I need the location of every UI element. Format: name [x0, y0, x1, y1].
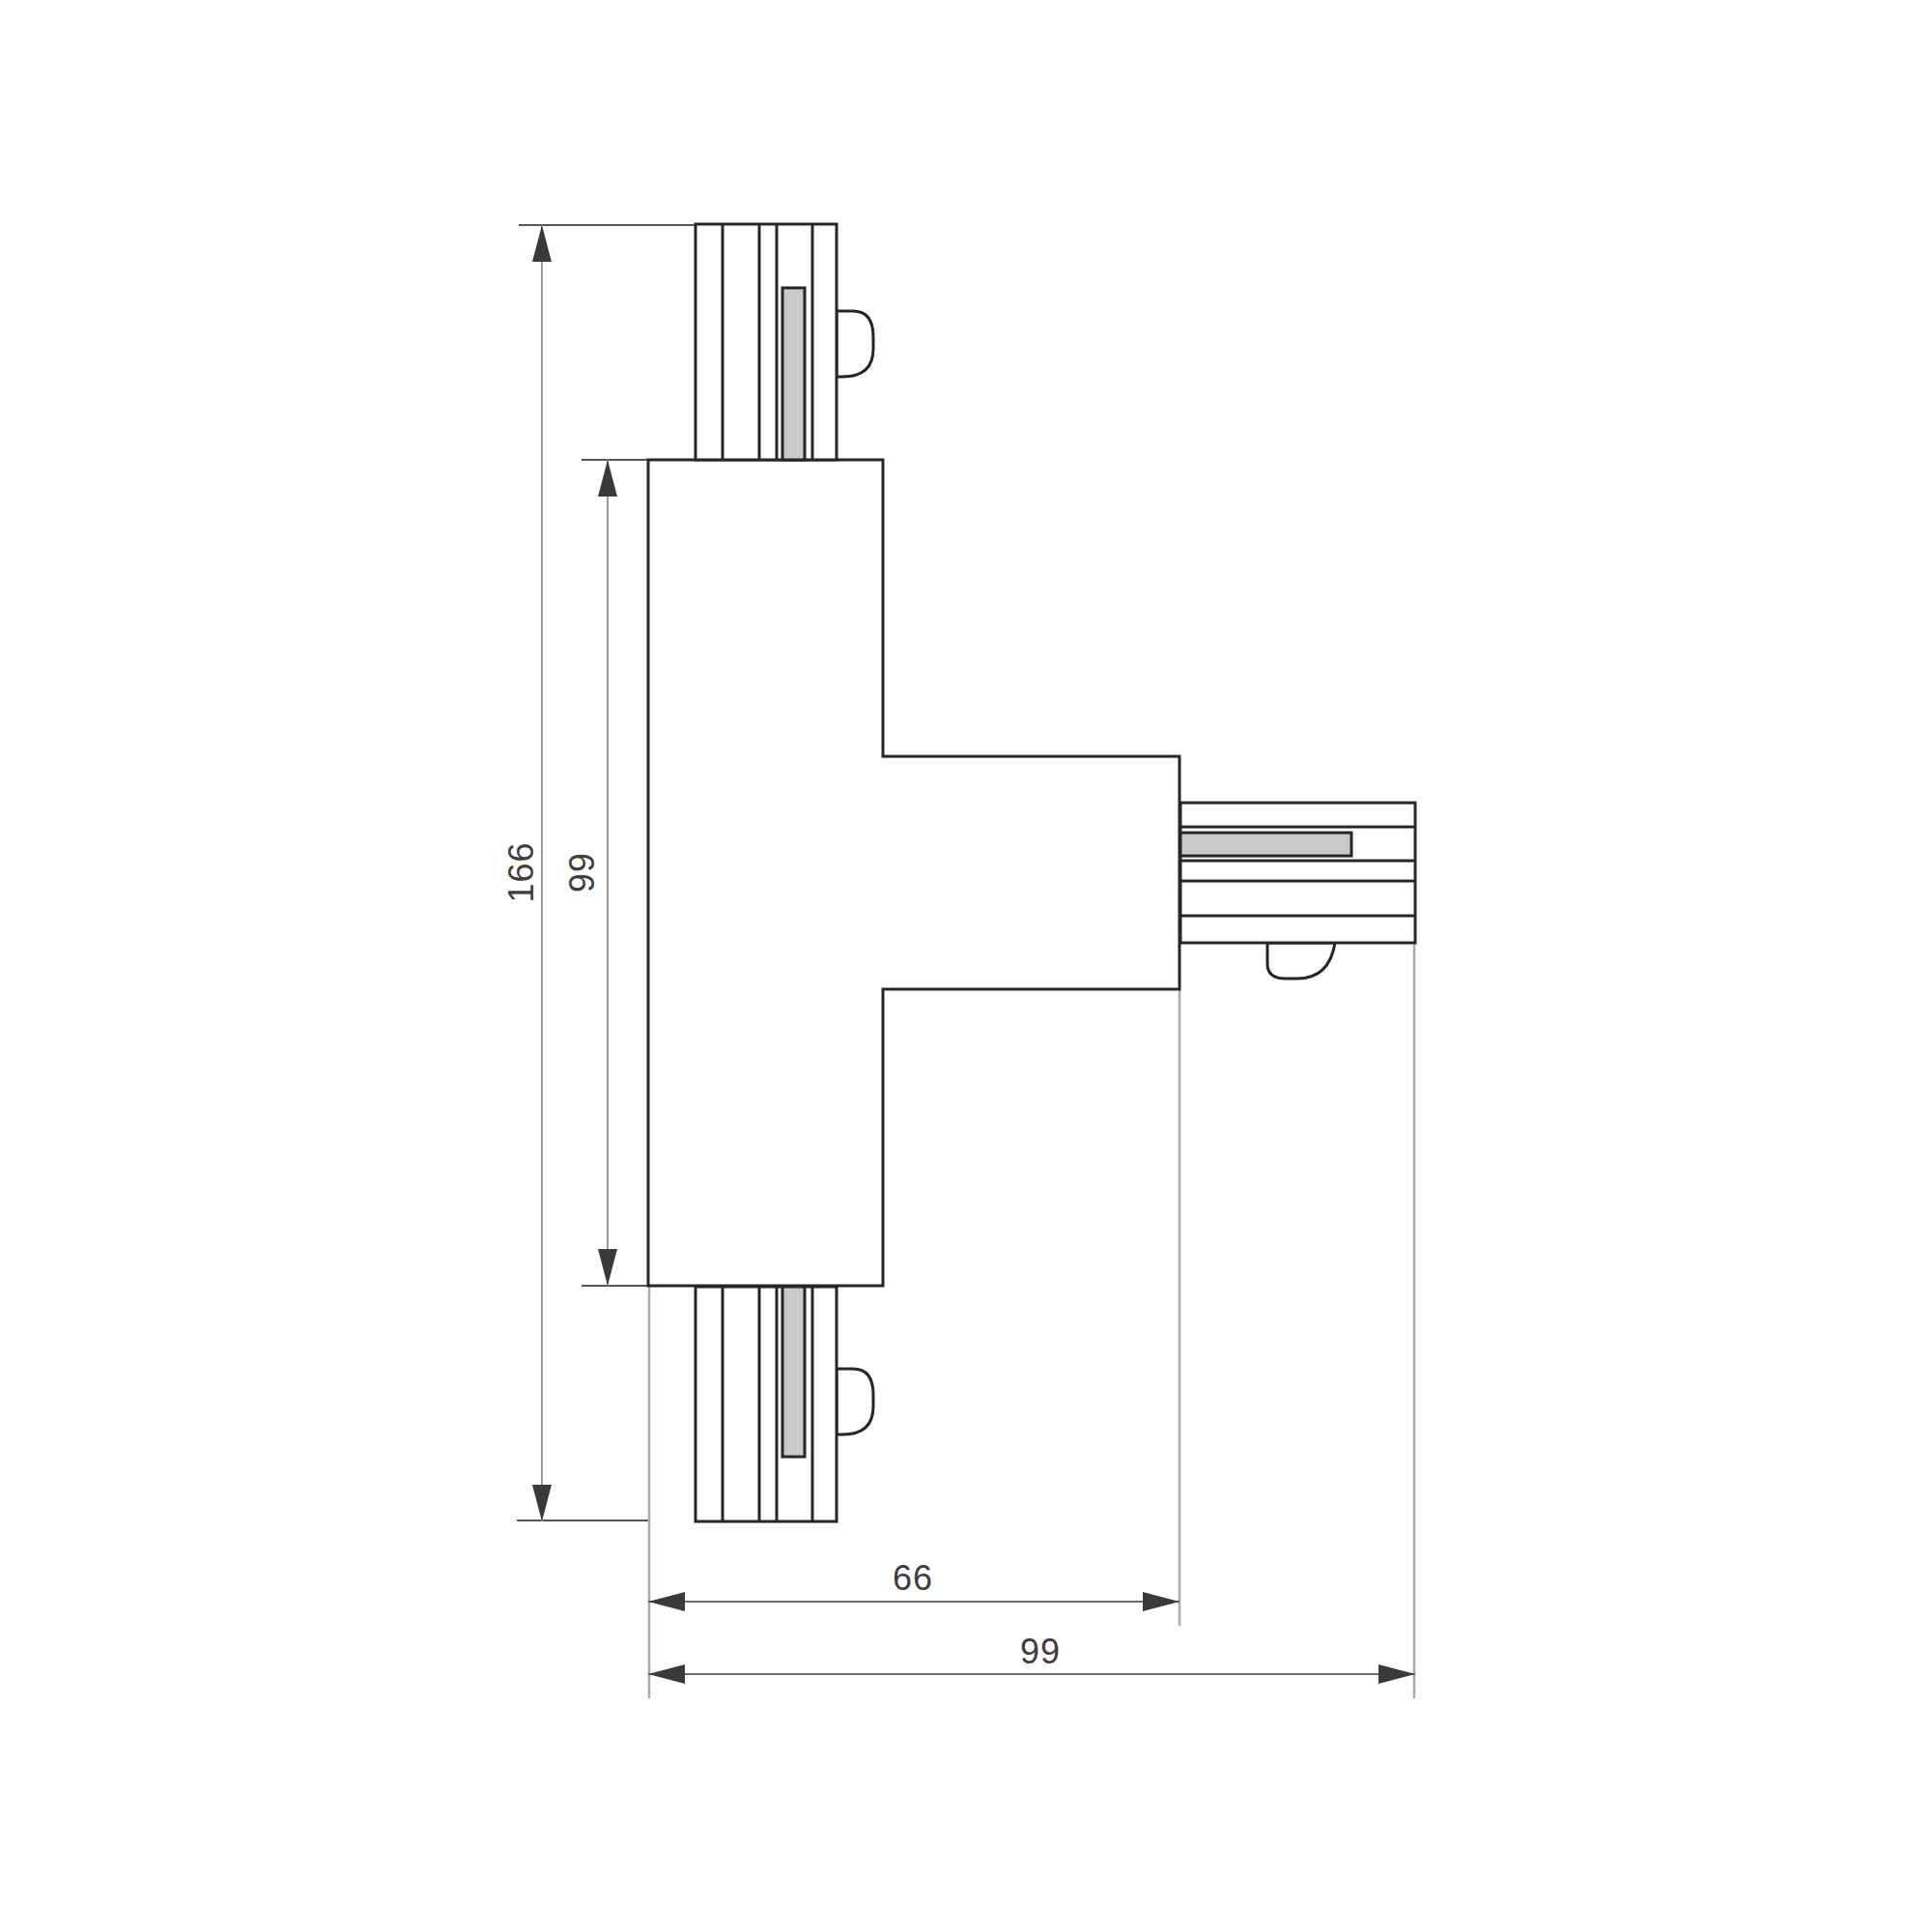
- right-connector-conductor: [1180, 833, 1351, 856]
- arrow-down-166: [532, 1485, 552, 1521]
- dim-label-99-horizontal: 99: [1020, 1632, 1061, 1671]
- dim-label-166: 166: [501, 841, 541, 902]
- t-body: [648, 460, 1179, 1286]
- arrow-left-66: [648, 1592, 685, 1611]
- arrow-down-99: [598, 1249, 617, 1286]
- arrow-right-66: [1143, 1592, 1179, 1611]
- arrow-up-99: [598, 460, 617, 497]
- top-connector-latch: [837, 311, 873, 377]
- bottom-connector: [696, 1287, 873, 1521]
- technical-drawing: 166 99 66 99: [0, 0, 1932, 1932]
- right-connector-latch: [1267, 943, 1335, 979]
- top-connector-body: [696, 224, 837, 460]
- dim-label-66: 66: [893, 1558, 933, 1598]
- bottom-connector-latch: [837, 1369, 873, 1435]
- right-connector-body: [1180, 803, 1415, 943]
- drawing-canvas: 166 99 66 99: [0, 0, 1932, 1932]
- bottom-connector-body: [696, 1287, 837, 1521]
- arrow-left-99: [648, 1664, 685, 1684]
- bottom-connector-conductor: [782, 1287, 805, 1457]
- arrow-up-166: [532, 225, 552, 262]
- top-connector-conductor: [782, 288, 805, 460]
- dim-label-99-vertical: 99: [562, 852, 602, 893]
- arrow-right-99: [1378, 1664, 1415, 1684]
- right-connector: [1180, 803, 1415, 979]
- top-connector: [696, 224, 873, 460]
